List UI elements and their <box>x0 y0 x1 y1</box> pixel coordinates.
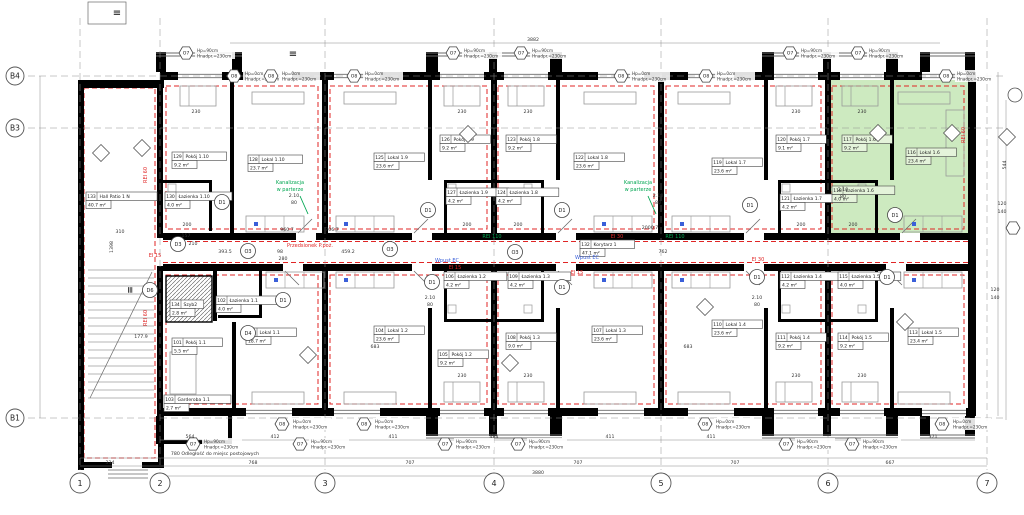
dimension-text: 411 <box>606 434 615 440</box>
annotation-green: REI 110 <box>665 234 684 240</box>
dimension-text: 1398 <box>109 241 115 253</box>
grid-axis-label: 3 <box>322 479 327 488</box>
dimension-text: 484 <box>490 434 499 440</box>
wall-segment <box>890 308 894 408</box>
room-number: 126 <box>441 137 450 143</box>
dimension-text: 2.10 <box>425 295 435 301</box>
room-number: 133 <box>87 194 96 200</box>
dimension-text: 3882 <box>527 37 539 43</box>
kitchen-sink-icon <box>254 222 258 226</box>
bed <box>444 86 480 106</box>
room-area: 4.0 m² <box>840 282 855 288</box>
annotation-black: ≡ <box>126 286 136 294</box>
dimension-text: 334 <box>106 460 115 466</box>
room-name: Pokój 1.4 <box>790 334 810 341</box>
window-marker-sill-height: Hp=0cm <box>632 71 650 76</box>
annotation-red: EI 15 <box>449 265 462 271</box>
grid-axis-label: 5 <box>658 479 663 488</box>
window-marker-sill-height: Hp=90cm <box>197 48 218 53</box>
grid-axis-label: B3 <box>10 124 20 133</box>
wall-segment <box>426 416 438 436</box>
dimension-text: 564 <box>186 434 195 440</box>
door-marker-code: D6 <box>146 288 153 294</box>
room-name: Pokój 1.7 <box>790 136 810 143</box>
dimension-text: 200 <box>183 222 192 228</box>
door-opening <box>412 233 432 240</box>
kitchen-sink-icon <box>274 278 278 282</box>
washer <box>168 184 176 192</box>
window-marker-lintel-height: Hnadpr.=230cm <box>375 425 409 430</box>
wall-segment <box>209 180 212 231</box>
room-number: 105 <box>439 352 448 358</box>
room-area: 4.2 m² <box>510 282 525 288</box>
window-marker-code: O7 <box>518 51 525 57</box>
wall-segment <box>428 80 432 180</box>
dimension-text: 230 <box>192 109 201 115</box>
room-area: 40.7 m² <box>88 202 106 208</box>
dimension-text: 200 <box>849 222 858 228</box>
room-name: Lokal 1.7 <box>726 160 746 166</box>
wall-segment <box>968 72 976 416</box>
sofa <box>344 392 396 404</box>
bed <box>180 86 216 106</box>
sofa <box>584 392 636 404</box>
window-marker-code: O8 <box>231 74 238 80</box>
room-number: 132 <box>581 242 590 248</box>
window-marker-code: O7 <box>183 51 190 57</box>
wall-segment <box>764 80 768 180</box>
room-area: 4.2 m² <box>782 282 797 288</box>
grid-axis-label: 7 <box>984 479 989 488</box>
room-name: Lokal 1.6 <box>920 150 940 156</box>
room-name: Lokal 1.8 <box>588 155 608 161</box>
room-name: Łazienka 1.2 <box>457 274 487 280</box>
room-number: 129 <box>173 154 182 160</box>
kitchen-sink-icon <box>680 278 684 282</box>
dimension-text: 2.10 <box>289 193 299 199</box>
window-marker-code: O7 <box>515 442 522 448</box>
room-area: 9.2 m² <box>442 145 457 151</box>
annotation-black: ≡ <box>289 49 297 60</box>
room-area: 4.2 m² <box>782 204 797 210</box>
room-number: 122 <box>575 155 584 161</box>
room-area: 9.2 m² <box>174 162 189 168</box>
dimension-text: 80 <box>291 200 297 206</box>
window-opening <box>504 408 548 416</box>
dimension-text: 230 <box>792 109 801 115</box>
room-name: Pokój 1.8 <box>520 136 540 143</box>
door-opening <box>900 233 920 240</box>
window-marker-lintel-height: Hnadpr.=230cm <box>797 445 831 450</box>
room-area: 23.4 m² <box>908 158 926 164</box>
window-marker-lintel-height: Hnadpr.=230cm <box>456 445 490 450</box>
door-marker-code: O3 <box>511 250 518 256</box>
room-area: 2.8 m² <box>172 310 187 316</box>
wall-segment <box>778 319 825 322</box>
grid-axis-label: 2 <box>157 479 162 488</box>
window-marker-lintel-height: Hnadpr.=230cm <box>204 445 238 450</box>
wall-segment <box>230 80 234 233</box>
red-dashed-outline <box>330 275 487 404</box>
dimension-text: 230 <box>858 109 867 115</box>
dimension-text: 157 <box>182 233 191 239</box>
annotation-red: Przedsionek P.poż. <box>287 243 333 249</box>
room-name: Łazienka 1.7 <box>793 196 823 202</box>
wall-segment <box>920 416 930 436</box>
window-marker-code: O7 <box>849 442 856 448</box>
room-number: 125 <box>375 155 384 161</box>
room-name: Łazienka 1.3 <box>521 274 551 280</box>
dimension-text: 177.9 <box>134 334 147 340</box>
washer <box>782 305 790 313</box>
wall-segment <box>444 180 491 183</box>
room-name: Lokal 1.4 <box>726 322 746 328</box>
wall-segment <box>78 80 164 88</box>
wall-segment <box>162 180 212 183</box>
window-marker-sill-height: Hp=90cm <box>464 48 485 53</box>
window-marker-code: O7 <box>783 442 790 448</box>
room-name: Szyb2 <box>184 302 198 308</box>
dimension-text: 140 <box>998 209 1007 215</box>
window-marker-lintel-height: Hnadpr.=230cm <box>957 77 991 82</box>
room-name: Pokój 1.2 <box>452 351 472 358</box>
door-opening <box>556 233 576 240</box>
room-name: Lokal 1.3 <box>606 328 626 334</box>
window-marker-lintel-height: Hnadpr.=230cm <box>293 425 327 430</box>
kitchen-sink-icon <box>912 222 916 226</box>
annotation-black: ≡ <box>113 8 121 19</box>
dimension-text: 707 <box>406 460 415 466</box>
window-marker-sill-height: Hp=90cm <box>529 439 550 444</box>
wall-segment <box>259 271 262 318</box>
door-marker-code: D1 <box>279 298 286 304</box>
dimension-text: 230 <box>458 373 467 379</box>
washer <box>448 305 456 313</box>
entrance-opening <box>112 462 142 468</box>
window-marker-lintel-height: Hnadpr.=230cm <box>801 54 835 59</box>
room-name: Lokal 1.9 <box>388 155 408 161</box>
dimension-text: 707 <box>574 460 583 466</box>
wall-segment <box>828 180 878 183</box>
wall-segment <box>78 80 84 470</box>
washer <box>858 305 866 313</box>
window-marker-sill-height: Hp=0cm <box>293 419 311 424</box>
dimension-text: 80 <box>655 200 661 206</box>
dimension-text: 706.7 <box>325 227 338 233</box>
wall-segment <box>762 416 774 436</box>
annotation-green: w parterze <box>625 187 652 193</box>
room-number: 120 <box>777 137 786 143</box>
room-name: Łazienka 1.10 <box>178 194 210 200</box>
annotation-green: Kanalizacja <box>276 180 304 186</box>
annotation-green: Kanalizacja <box>624 180 652 186</box>
sofa <box>678 92 730 104</box>
room-area: 2.7 m² <box>166 405 181 411</box>
room-area: 23.6 m² <box>594 336 612 342</box>
window-marker-code: O8 <box>702 422 709 428</box>
floorplan-drawing: 1234567B4B3B1O7Hp=90cmHnadpr.=230cmO7Hp=… <box>0 0 1024 515</box>
door-leaf <box>414 219 428 233</box>
window-marker-sill-height: Hp=90cm <box>801 48 822 53</box>
reference-diamond-marker <box>134 140 151 157</box>
window-marker-sill-height: Hp=0cm <box>717 71 735 76</box>
sofa <box>344 92 396 104</box>
window-marker-sill-height: Hp=0cm <box>245 71 263 76</box>
dimension-text: 707 <box>731 460 740 466</box>
window-marker-sill-height: Hp=90cm <box>869 48 890 53</box>
annotation-red: EI 30 <box>611 234 624 240</box>
door-leaf <box>298 219 312 233</box>
room-area: 4.2 m² <box>448 198 463 204</box>
window-marker-lintel-height: Hnadpr.=230cm <box>311 445 345 450</box>
door-marker-code: D1 <box>424 208 431 214</box>
room-name: Garderoba 1.1 <box>178 397 210 403</box>
window-marker-sill-height: Hp=0cm <box>953 419 971 424</box>
room-number: 113 <box>909 330 918 336</box>
window-marker-code: O8 <box>268 74 275 80</box>
wall-segment <box>426 52 438 72</box>
wall-segment <box>494 180 544 183</box>
dimension-text: 80 <box>840 194 846 200</box>
door-marker-code: D3 <box>174 242 181 248</box>
wall-segment <box>156 416 160 442</box>
door-marker-code: D1 <box>218 200 225 206</box>
window-marker-lintel-height: Hnadpr.=230cm <box>953 425 987 430</box>
dimension-text: 544 <box>1002 161 1008 170</box>
wall-segment <box>828 319 878 322</box>
bed <box>776 86 812 106</box>
wall-segment <box>890 80 894 180</box>
room-number: 119 <box>713 160 722 166</box>
door-marker-code: D1 <box>558 208 565 214</box>
sofa <box>898 392 950 404</box>
room-number: 116 <box>907 150 916 156</box>
room-name: Łazienka 1.8 <box>509 190 539 196</box>
window-marker-sill-height: Hp=0cm <box>957 71 975 76</box>
window-marker-code: O7 <box>855 51 862 57</box>
window-marker-code: O7 <box>787 51 794 57</box>
window-marker-sill-height: Hp=0cm <box>365 71 383 76</box>
window-marker-lintel-height: Hnadpr.=230cm <box>869 54 903 59</box>
window-marker-code: O7 <box>190 442 197 448</box>
window-marker-sill-height: Hp=0cm <box>716 419 734 424</box>
door-opening <box>296 233 316 240</box>
kanalizacja-arrow <box>300 196 308 214</box>
wall-segment <box>886 416 898 436</box>
window-marker-code: O8 <box>703 74 710 80</box>
room-area: 9.2 m² <box>508 145 523 151</box>
window-marker-sill-height: Hp=0cm <box>375 419 393 424</box>
window-marker-lintel-height: Hnadpr.=230cm <box>282 77 316 82</box>
annotation-blue: Wpust EC <box>575 255 600 261</box>
room-number: 134 <box>171 302 180 308</box>
room-name: Lokal 1.5 <box>922 330 942 336</box>
bed <box>170 352 196 394</box>
door-marker-code: D1 <box>753 275 760 281</box>
kitchen-sink-icon <box>602 222 606 226</box>
window-marker-code: O8 <box>618 74 625 80</box>
room-number: 124 <box>497 190 506 196</box>
window-marker-lintel-height: Hnadpr.=230cm <box>197 54 231 59</box>
room-number: 130 <box>166 194 175 200</box>
room-number: 109 <box>509 274 518 280</box>
wall-segment <box>920 52 930 72</box>
room-number: 107 <box>593 328 602 334</box>
window-opening <box>440 408 484 416</box>
dimension-text: 960.7 <box>280 227 293 233</box>
bed <box>508 86 544 106</box>
dimension-text: 140 <box>991 295 1000 301</box>
room-area: 4.2 m² <box>446 282 461 288</box>
window-opening <box>840 408 884 416</box>
room-name: Lokal 1.10 <box>262 157 285 163</box>
room-name: Pokój 1.10 <box>186 153 209 160</box>
window-marker-sill-height: Hp=0cm <box>282 71 300 76</box>
room-area: 23.6 m² <box>376 163 394 169</box>
window-marker-sill-height: Hp=90cm <box>863 439 884 444</box>
bed <box>444 382 480 402</box>
door-marker-code: O3 <box>386 247 393 253</box>
door-marker-code: D1 <box>558 285 565 291</box>
wall-segment <box>556 308 560 408</box>
window-marker-sill-height: Hp=90cm <box>204 439 225 444</box>
dimension-text: 2000.7 <box>642 225 658 231</box>
window-marker-code: O8 <box>279 422 286 428</box>
annotation-red: REI 60 <box>961 127 967 143</box>
sofa <box>584 92 636 104</box>
bed <box>842 382 878 402</box>
window-marker-code: O8 <box>361 422 368 428</box>
dimension-text: 98 <box>277 249 283 255</box>
wall-segment <box>494 319 544 322</box>
room-name: Łazienka 1.4 <box>793 274 823 280</box>
door-leaf <box>558 219 572 233</box>
grid-bubble <box>1008 88 1022 102</box>
door-opening <box>283 264 303 271</box>
room-number: 121 <box>781 196 790 202</box>
grid-axis-label: B4 <box>10 72 20 81</box>
room-name: Pokój 1.3 <box>520 334 540 341</box>
reference-diamond-marker <box>300 347 317 364</box>
dimension-text: 683 <box>371 344 380 350</box>
door-leaf <box>746 219 760 233</box>
annotation-red: REI 60 <box>143 167 149 183</box>
window-opening <box>922 408 966 416</box>
reference-diamond-marker <box>697 299 714 316</box>
wall-segment <box>218 315 262 318</box>
window-marker-lintel-height: Hnadpr.=230cm <box>464 54 498 59</box>
kitchen-sink-icon <box>344 278 348 282</box>
room-name: Pokój 1.5 <box>852 334 872 341</box>
door-marker-code: D1 <box>428 280 435 286</box>
room-area: 9.2 m² <box>778 343 793 349</box>
sofa <box>678 392 730 404</box>
dimension-text: 459.2 <box>341 249 354 255</box>
grid-axis-label: B1 <box>10 414 20 423</box>
room-area: 23.6 m² <box>376 336 394 342</box>
floor-plan-svg: 1234567B4B3B1O7Hp=90cmHnadpr.=230cmO7Hp=… <box>0 0 1024 515</box>
room-name: Łazienka 1.5 <box>851 274 881 280</box>
room-name: Łazienka 1.1 <box>229 298 259 304</box>
reference-diamond-marker <box>93 145 110 162</box>
room-number: 117 <box>843 137 852 143</box>
room-number: 102 <box>217 298 226 304</box>
window-opening <box>334 408 380 416</box>
annotation-red: EI 15 <box>149 253 162 259</box>
wall-segment <box>556 80 560 180</box>
window-marker-code: O7 <box>450 51 457 57</box>
room-area: 4.2 m² <box>498 198 513 204</box>
dimension-text: 2.10 <box>752 295 762 301</box>
room-name: Hall Patio 1 N <box>100 194 130 200</box>
door-leaf <box>285 271 299 285</box>
window-marker-lintel-height: Hnadpr.=230cm <box>532 54 566 59</box>
wall-segment <box>489 416 497 436</box>
wall-segment <box>823 416 831 436</box>
window-marker-lintel-height: Hnadpr.=230cm <box>863 445 897 450</box>
room-area: 4.0 m² <box>167 202 182 208</box>
dimension-text: 230 <box>858 373 867 379</box>
room-area: 9.0 m² <box>508 343 523 349</box>
annotation-blue: Wpust EC <box>435 258 460 264</box>
window-opening <box>688 408 734 416</box>
room-name: Lokal 1.2 <box>388 328 408 334</box>
room-number: 112 <box>781 274 790 280</box>
dimension-text: 230 <box>524 373 533 379</box>
door-marker-code: D1 <box>883 275 890 281</box>
room-number: 106 <box>445 274 454 280</box>
room-area: 23.6 m² <box>714 330 732 336</box>
dimension-text: 80 <box>754 302 760 308</box>
window-marker-sill-height: Hp=90cm <box>456 439 477 444</box>
door-marker-code: D1 <box>891 213 898 219</box>
dimension-text: 2.10 <box>838 187 848 193</box>
window-marker-sill-height: Hp=90cm <box>532 48 553 53</box>
annotation-red: EI 30 <box>752 257 765 263</box>
kitchen-sink-icon <box>602 278 606 282</box>
room-name: Lokal 1.1 <box>260 330 280 336</box>
dimension-text: 200 <box>463 222 472 228</box>
window-marker-lintel-height: Hnadpr.=230cm <box>529 445 563 450</box>
wall-segment <box>428 308 432 408</box>
window-marker-code: O8 <box>943 74 950 80</box>
wall-segment <box>778 180 825 183</box>
window-marker-lintel-height: Hnadpr.=230cm <box>716 425 750 430</box>
window-marker-code: O7 <box>297 442 304 448</box>
room-area: 5.5 m² <box>174 348 189 354</box>
room-area: 4.0 m² <box>218 306 233 312</box>
room-name: Pokój 1.1 <box>186 339 206 346</box>
room-number: 127 <box>447 190 456 196</box>
dimension-text: 2.10 <box>653 193 663 199</box>
dimension-text: 667 <box>886 460 895 466</box>
room-number: 128 <box>249 157 258 163</box>
annotation-red: EI 15 <box>571 270 584 276</box>
bed <box>508 382 544 402</box>
window-opening <box>774 408 818 416</box>
dimension-text: 230 <box>458 109 467 115</box>
dimension-text: 230 <box>792 373 801 379</box>
room-name: Łazienka 1.6 <box>845 188 875 194</box>
annotation-green: REI 110 <box>482 234 501 240</box>
room-number: 114 <box>839 335 848 341</box>
dimension-text: 393.5 <box>218 249 231 255</box>
window-marker-code: O7 <box>442 442 449 448</box>
window-marker-lintel-height: Hnadpr.=230cm <box>717 77 751 82</box>
room-number: 123 <box>507 137 516 143</box>
grid-axis-label: 1 <box>77 479 82 488</box>
reference-diamond-marker <box>999 129 1016 146</box>
